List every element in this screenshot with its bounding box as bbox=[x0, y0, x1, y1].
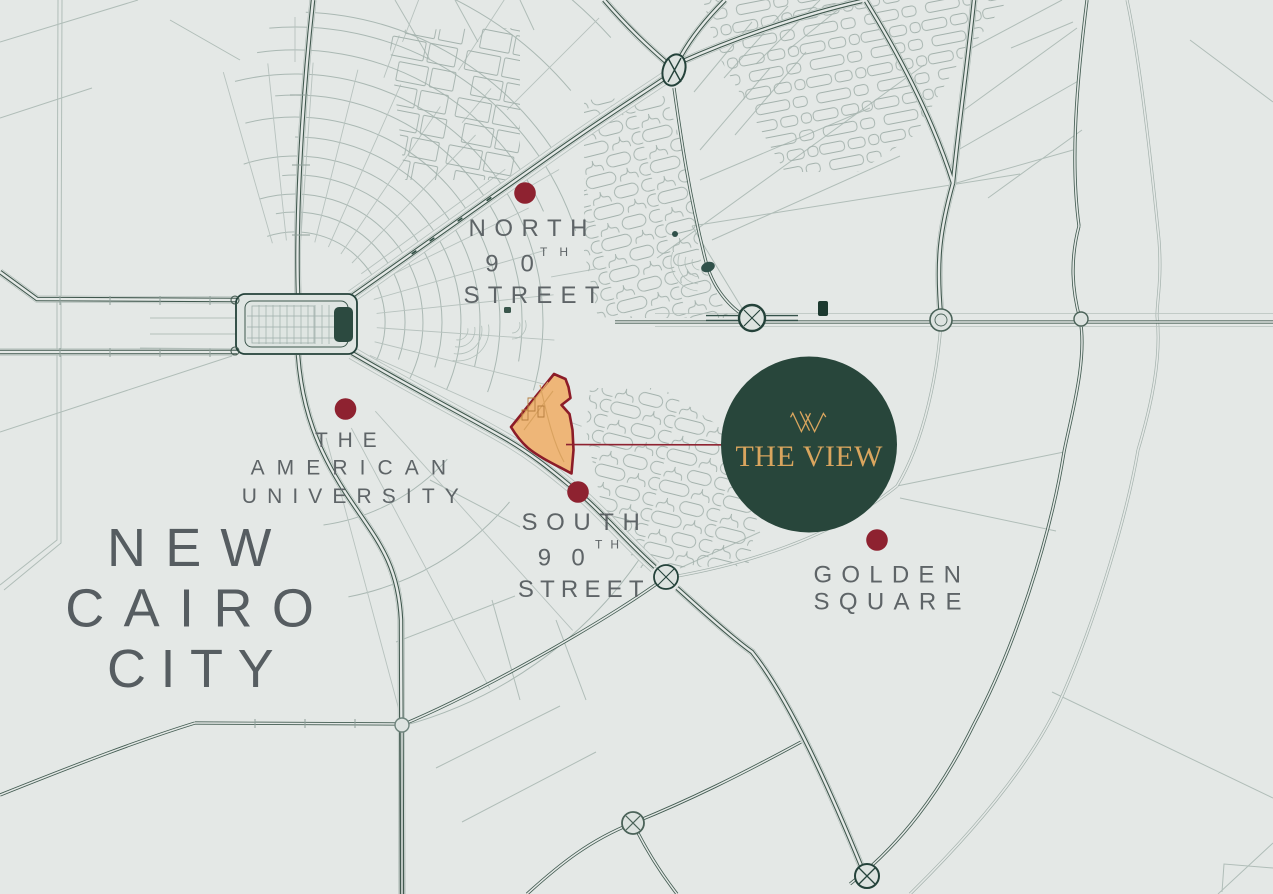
svg-text:CITY: CITY bbox=[107, 639, 274, 699]
svg-text:NEW: NEW bbox=[107, 518, 271, 578]
svg-text:THE: THE bbox=[315, 429, 377, 452]
svg-text:THE VIEW: THE VIEW bbox=[736, 440, 884, 473]
svg-text:CAIRO: CAIRO bbox=[65, 578, 314, 638]
